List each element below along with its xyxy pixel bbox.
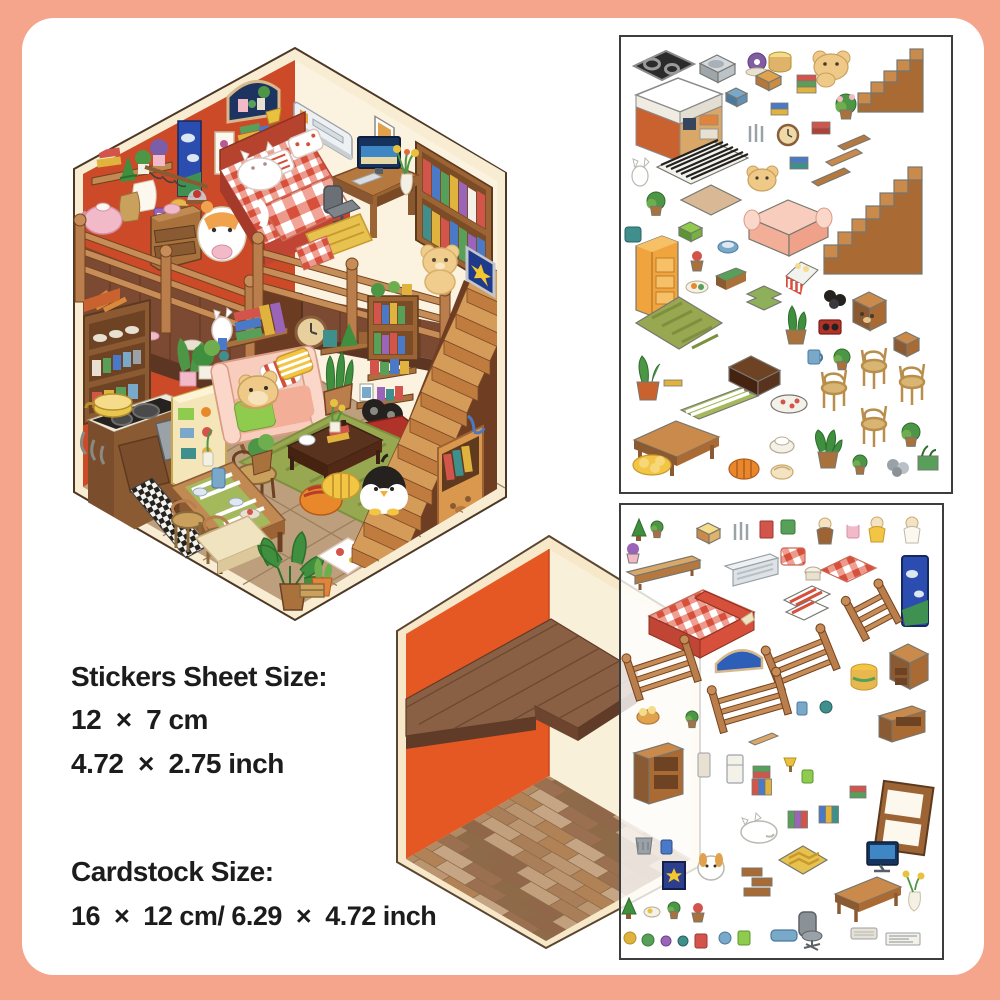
svg-text:12 × 7 cm: 12 × 7 cm xyxy=(71,704,208,735)
svg-text:4.72 × 2.75 inch: 4.72 × 2.75 inch xyxy=(71,748,284,779)
svg-text:Stickers Sheet Size:: Stickers Sheet Size: xyxy=(71,661,327,692)
svg-text:Cardstock Size:: Cardstock Size: xyxy=(71,856,274,887)
svg-text:16 × 12 cm/ 6.29 × 4.72 in: 16 × 12 cm/ 6.29 × 4.72 inch xyxy=(71,901,436,931)
